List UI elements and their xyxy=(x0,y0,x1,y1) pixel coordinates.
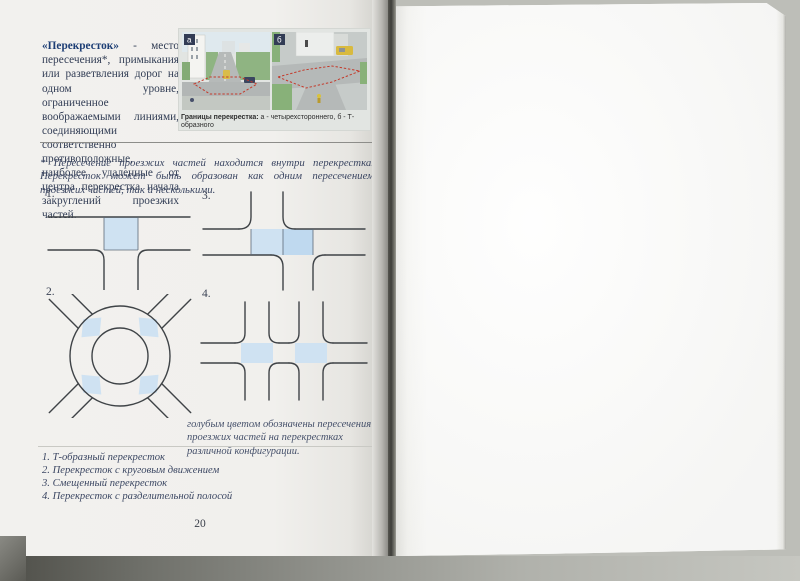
intersection-area xyxy=(241,343,273,363)
road-edge xyxy=(283,192,295,229)
dark-car xyxy=(244,77,255,83)
greenery xyxy=(360,62,367,84)
road-edge xyxy=(323,302,333,343)
page-number: 20 xyxy=(150,518,250,530)
road-edge xyxy=(235,363,245,400)
pedestrian-body xyxy=(318,98,321,103)
road-edge xyxy=(271,255,283,290)
photo-intersection-t-shaped: б xyxy=(272,32,367,110)
road-edge xyxy=(289,363,299,400)
photo-label-b: б xyxy=(277,36,282,45)
book-scan: «Перекресток» - место пересечения*, прим… xyxy=(0,0,800,581)
book-spine xyxy=(388,0,396,581)
right-blank-page xyxy=(396,3,786,556)
road-edge xyxy=(289,302,299,343)
road-edge xyxy=(269,363,279,400)
trees-right xyxy=(236,52,270,80)
pedestrian xyxy=(305,40,308,47)
legend-list: 1. Т-образный перекресток 2. Перекресток… xyxy=(42,451,342,503)
legend-item: 4. Перекресток с разделительной полосой xyxy=(42,490,342,503)
outer-ring xyxy=(70,306,170,406)
legend-divider xyxy=(38,446,372,447)
figure-caption: Границы перекрестка: а - четырехсторонне… xyxy=(181,114,368,130)
intersection-area xyxy=(283,229,313,255)
t-intersection-diagram xyxy=(44,202,194,290)
footnote-rule xyxy=(40,142,372,143)
intersection-area xyxy=(251,229,283,255)
legend-item: 2. Перекресток с круговым движением xyxy=(42,464,342,477)
road-edge xyxy=(48,250,104,290)
road-edge xyxy=(239,192,251,229)
greenery xyxy=(272,84,292,110)
sidewalk xyxy=(182,96,270,110)
car-window xyxy=(339,48,345,52)
pedestrian xyxy=(317,94,321,98)
pedestrian xyxy=(190,98,194,102)
figure-caption-lead: Границы перекрестка: xyxy=(181,114,259,121)
figure-panel: а б Границы перекрестка: а - xyxy=(179,29,370,130)
intersection-area xyxy=(295,343,327,363)
central-island xyxy=(92,328,148,384)
legend-item: 1. Т-образный перекресток xyxy=(42,451,342,464)
page-sheen xyxy=(396,3,786,556)
road-cross xyxy=(182,82,270,96)
left-page: «Перекресток» - место пересечения*, прим… xyxy=(0,0,380,558)
scanner-bed-strip xyxy=(0,556,800,581)
diagram-1-label: 1. xyxy=(46,188,55,200)
photo-intersection-four-way: а xyxy=(182,32,270,110)
divided-road-intersection-diagram xyxy=(199,300,369,402)
yellow-car xyxy=(223,70,230,79)
trees-left xyxy=(182,62,190,80)
road-edge xyxy=(323,363,333,400)
road-edge xyxy=(235,302,245,343)
roundabout-diagram xyxy=(44,294,196,418)
scanner-bed-corner xyxy=(0,536,26,581)
road-edge xyxy=(138,250,190,290)
definition-term: «Перекресток» xyxy=(42,40,119,52)
intersection-area xyxy=(104,217,138,250)
offset-intersection-diagram xyxy=(199,190,369,292)
road-edge xyxy=(313,255,325,290)
left-page-edge xyxy=(372,0,388,558)
road-edge xyxy=(269,302,279,343)
photo-label-a: а xyxy=(187,36,192,45)
building xyxy=(296,32,334,56)
legend-item: 3. Смещенный перекресток xyxy=(42,477,342,490)
